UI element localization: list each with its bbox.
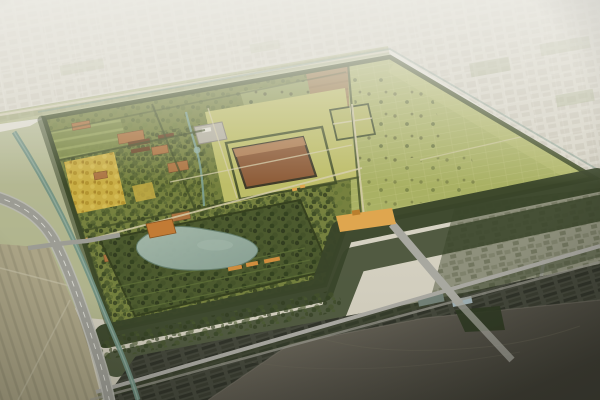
aerial-rendering: Aerial bird's-eye rendering of a vast wa… xyxy=(0,0,600,400)
rendering-canvas: Aerial bird's-eye rendering of a vast wa… xyxy=(0,0,600,400)
vignette xyxy=(0,0,600,400)
